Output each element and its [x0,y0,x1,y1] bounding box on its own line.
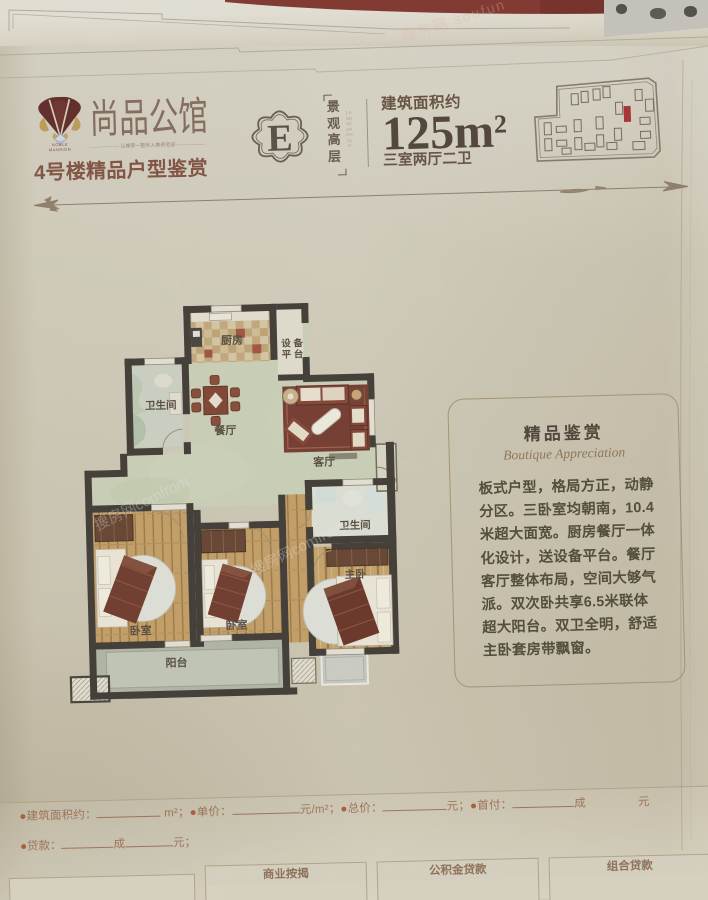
svg-text:厨房: 厨房 [221,333,243,348]
svg-text:阳台: 阳台 [165,655,187,670]
svg-text:平 台: 平 台 [281,348,303,361]
svg-text:卧室: 卧室 [129,623,151,638]
svg-text:卧室: 卧室 [225,618,247,633]
svg-text:餐厅: 餐厅 [213,423,236,438]
svg-text:卫生间: 卫生间 [145,398,177,412]
svg-text:客厅: 客厅 [312,454,335,469]
svg-text:设 备: 设 备 [281,337,303,350]
svg-text:主卧: 主卧 [345,568,367,582]
